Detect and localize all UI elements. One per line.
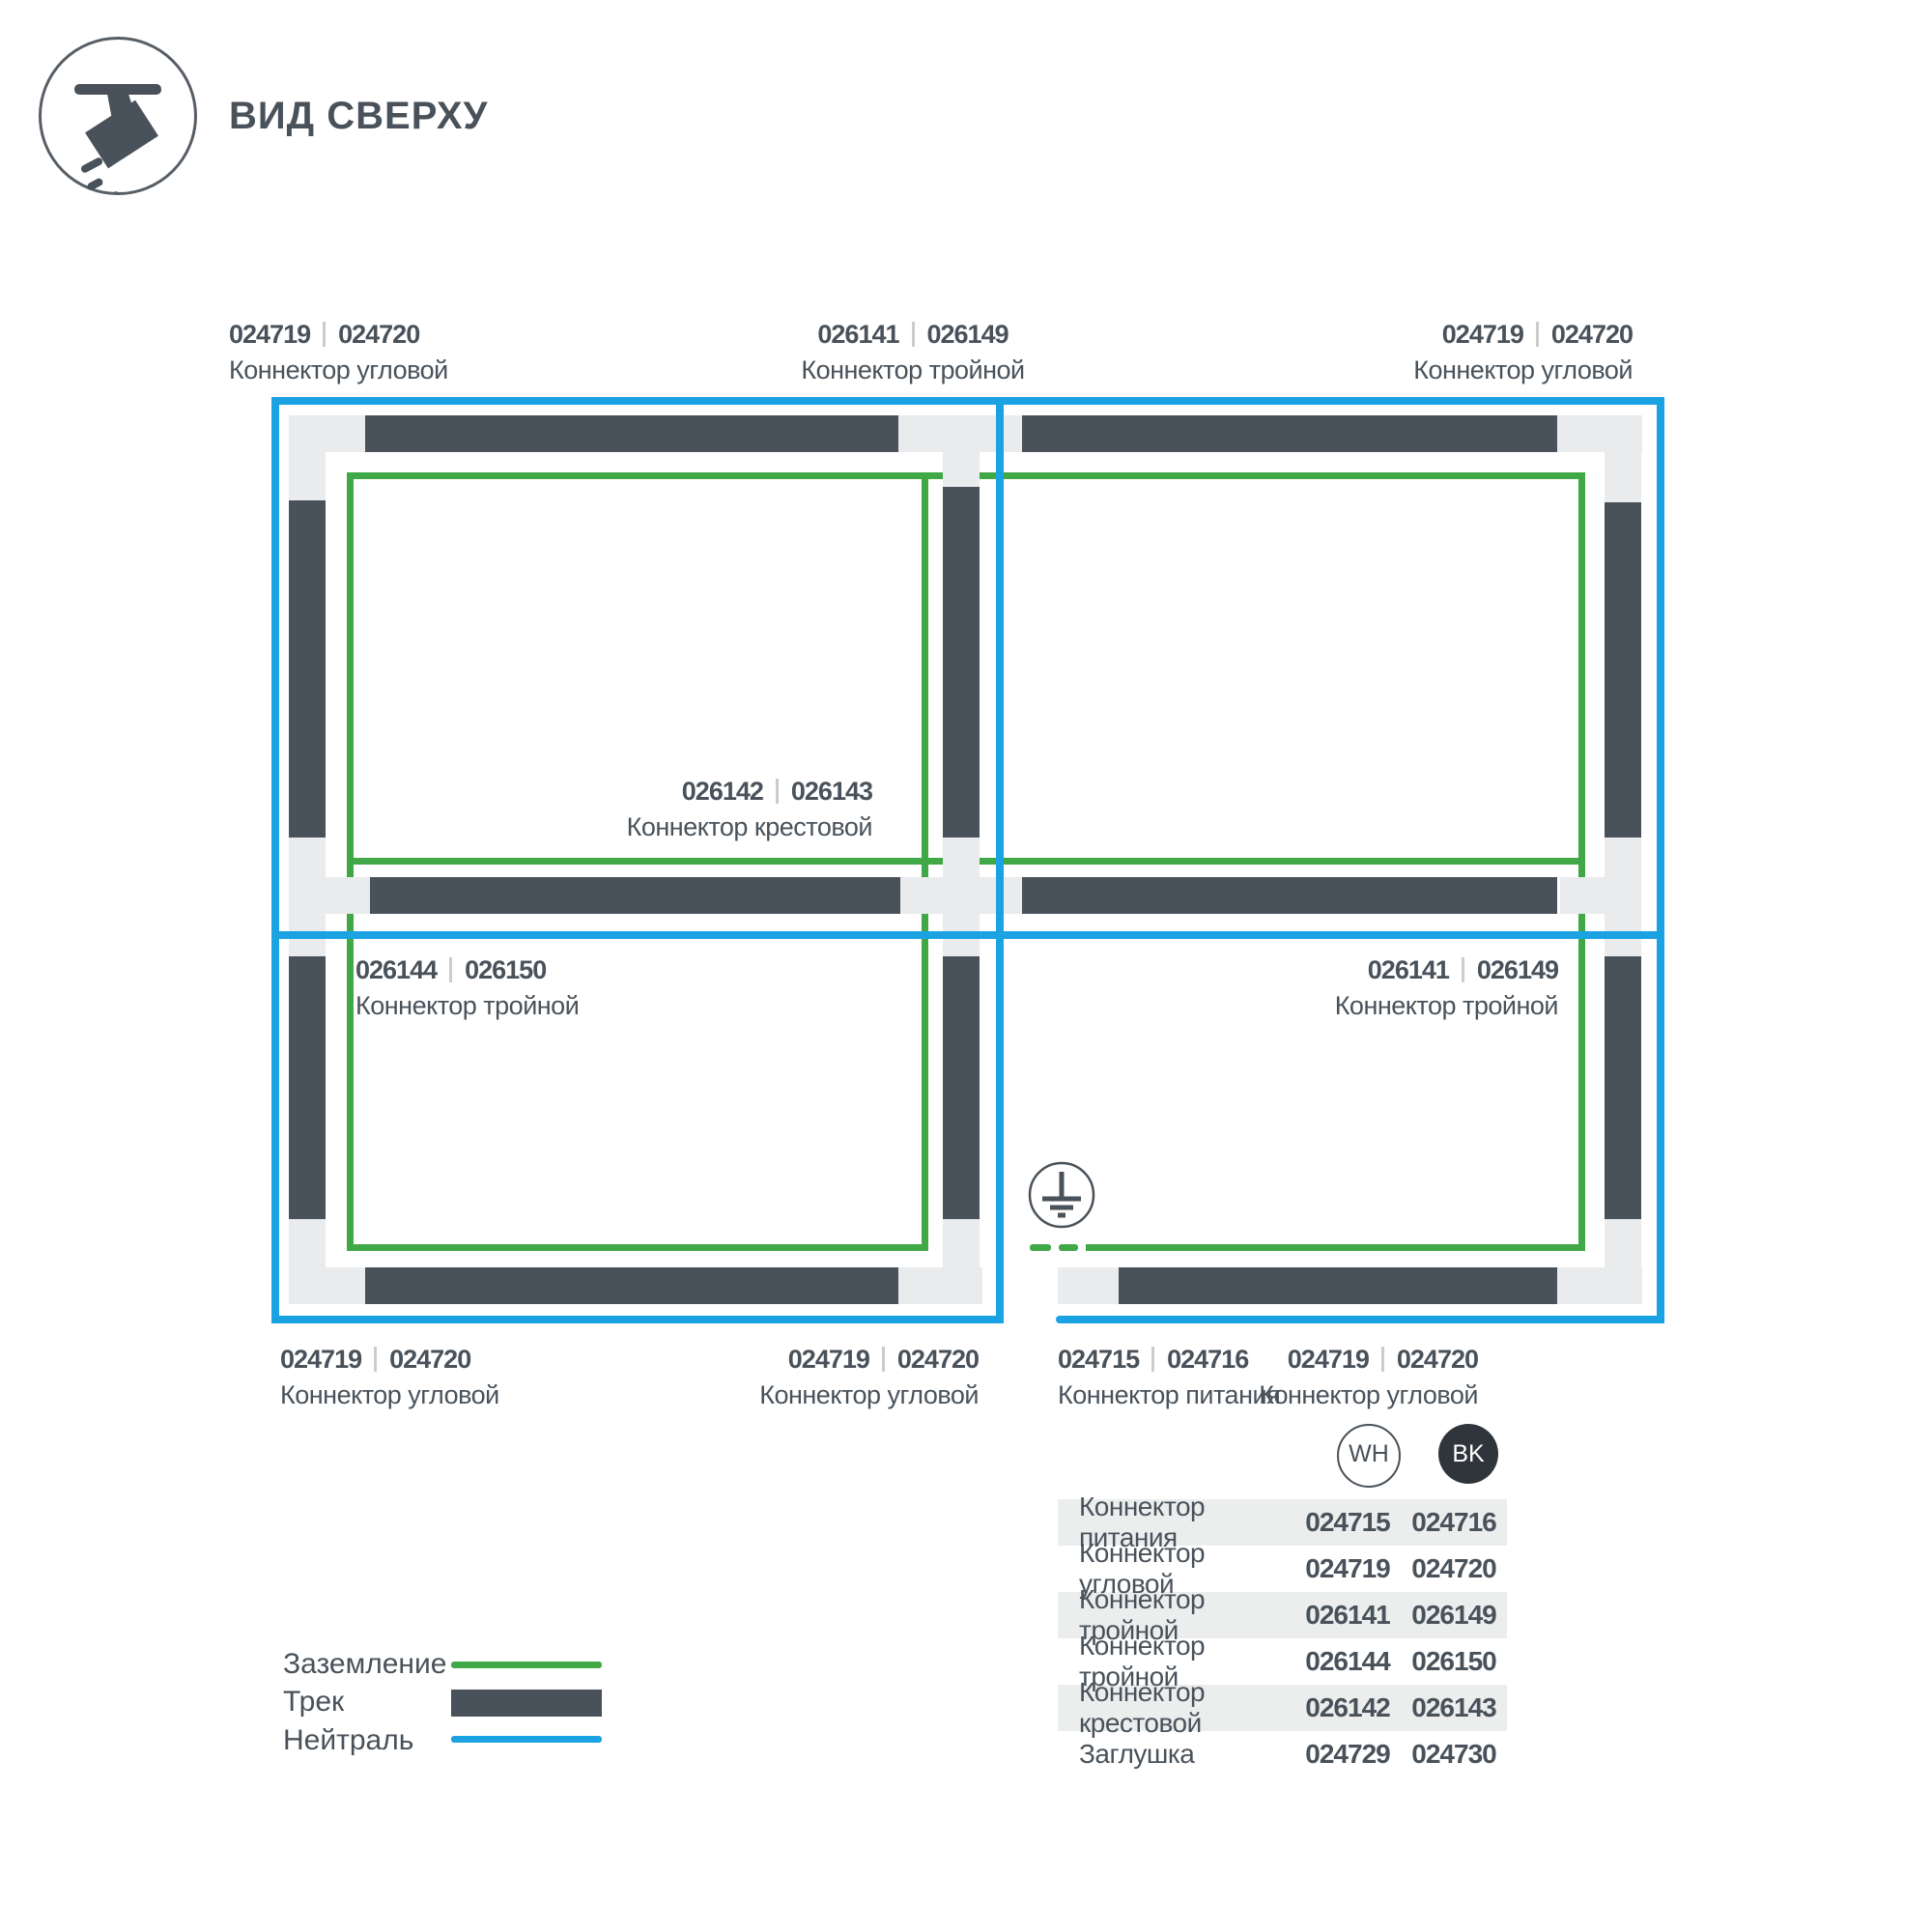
track-segment	[289, 956, 326, 1223]
corner-connector	[1605, 415, 1641, 502]
label-divider	[1536, 322, 1539, 347]
track-segment	[289, 500, 326, 838]
label-divider	[882, 1347, 885, 1372]
legend-blue-line	[451, 1736, 602, 1743]
label-triple-connector: 026141026149 Коннектор тройной	[768, 319, 1058, 385]
label-triple-connector: 026141026149 Коннектор тройной	[1335, 954, 1558, 1021]
label-divider	[323, 322, 326, 347]
earth-ground-icon	[1026, 1159, 1098, 1232]
label-divider	[1462, 957, 1464, 982]
legend-label-ground: Заземление	[283, 1648, 446, 1681]
cross-connector	[900, 877, 1022, 914]
ground-line-bottom-left	[347, 1244, 927, 1251]
neutral-line-top	[271, 397, 1664, 405]
corner-connector	[289, 415, 326, 500]
label-divider	[374, 1347, 377, 1372]
legend-green-line	[451, 1662, 602, 1668]
triple-connector	[326, 877, 370, 914]
parts-table: Коннектор питания 024715 024716 Коннекто…	[1058, 1499, 1507, 1777]
color-chip-black: BK	[1438, 1424, 1498, 1484]
ground-line-right	[1578, 472, 1585, 1251]
track-segment	[1605, 502, 1641, 838]
track-segment	[1119, 1267, 1557, 1304]
neutral-line-right	[1657, 397, 1664, 1323]
power-connector	[1058, 1267, 1119, 1304]
neutral-line-bottom-left	[271, 1316, 1004, 1323]
track-segment	[943, 956, 980, 1223]
track-segment	[370, 877, 900, 914]
triple-connector	[943, 452, 980, 487]
corner-connector	[289, 1219, 326, 1304]
track-segment	[365, 415, 898, 452]
ground-line-left	[347, 472, 354, 1251]
label-corner-connector: 024719024720 Коннектор угловой	[759, 1344, 979, 1410]
ground-line-bottom-right	[1086, 1244, 1585, 1251]
label-corner-connector: 024719024720 Коннектор угловой	[229, 319, 448, 385]
label-divider	[776, 779, 779, 804]
ground-dash	[1030, 1244, 1051, 1251]
color-chip-white: WH	[1337, 1424, 1401, 1488]
corner-connector	[1605, 1219, 1641, 1304]
page-title: ВИД СВЕРХУ	[229, 95, 488, 138]
corner-connector	[943, 1219, 980, 1304]
legend-track-bar	[451, 1690, 602, 1717]
label-divider	[449, 957, 452, 982]
neutral-line-middle	[271, 931, 1664, 939]
legend-label-neutral: Нейтраль	[283, 1724, 413, 1757]
table-row: Коннектор крестовой 026142 026143	[1058, 1685, 1507, 1731]
label-corner-connector: 024719024720 Коннектор угловой	[1413, 319, 1633, 385]
label-divider	[1151, 1347, 1154, 1372]
track-segment	[1022, 877, 1557, 914]
triple-connector	[1560, 877, 1605, 914]
label-corner-connector: 024719024720 Коннектор угловой	[280, 1344, 499, 1410]
neutral-line-center	[996, 397, 1004, 1323]
neutral-line-left	[271, 397, 279, 1323]
neutral-line-bottom-right	[1056, 1316, 1664, 1323]
page: ВИД СВЕРХУ	[0, 0, 1932, 1932]
ground-dash	[1059, 1244, 1078, 1251]
track-segment	[365, 1267, 898, 1304]
track-segment	[943, 486, 980, 838]
label-corner-connector: 024719024720 Коннектор угловой	[1259, 1344, 1478, 1410]
track-segment	[1022, 415, 1557, 452]
track-light-badge	[39, 37, 197, 195]
label-triple-connector: 026144026150 Коннектор тройной	[355, 954, 579, 1021]
label-cross-connector: 026142026143 Коннектор крестовой	[627, 776, 872, 842]
ground-line-center	[922, 472, 928, 1251]
label-power-connector: 024715024716 Коннектор питания	[1058, 1344, 1280, 1410]
label-divider	[912, 322, 915, 347]
track-segment	[1605, 956, 1641, 1223]
legend-label-track: Трек	[283, 1686, 344, 1719]
table-row: Заглушка 024729 024730	[1058, 1731, 1507, 1777]
track-spotlight-icon	[42, 40, 194, 192]
label-divider	[1381, 1347, 1384, 1372]
